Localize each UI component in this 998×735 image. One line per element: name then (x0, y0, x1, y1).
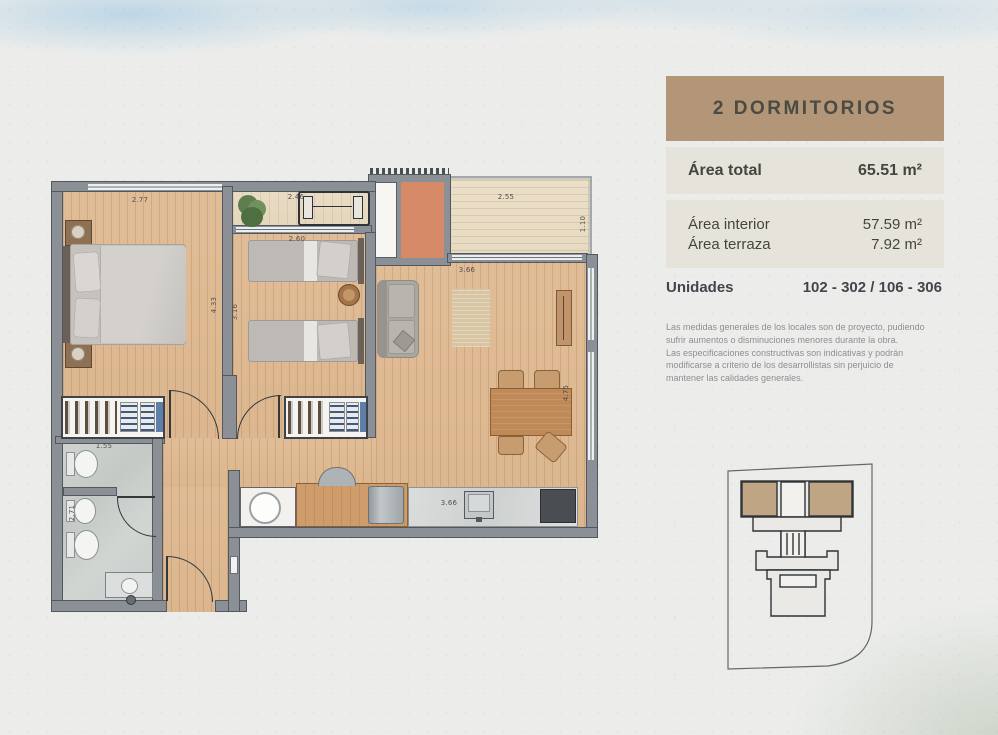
living-terrace-slider (452, 255, 582, 260)
faucet (476, 517, 482, 522)
key-plan (725, 453, 877, 673)
keyplan-unit-highlight (809, 482, 852, 516)
area-detail-box: Área interior 57.59 m² Área terraza 7.92… (666, 200, 944, 268)
dining-chair (498, 370, 524, 389)
dim-label: 1.10 (579, 216, 587, 232)
living-window-2 (588, 352, 594, 460)
plant-foliage (241, 207, 263, 227)
single-bed (248, 318, 364, 364)
folded-clothes-shelf (121, 403, 137, 431)
area-total-box: Área total 65.51 m² (666, 147, 944, 194)
pillow (316, 240, 352, 279)
bench-leg (353, 196, 363, 219)
garment-blue (156, 402, 163, 432)
pillow (316, 322, 351, 361)
terrace-boundary (451, 176, 592, 262)
area-terraza-label: Área terraza (688, 236, 771, 253)
area-interior-value: 57.59 m² (863, 216, 922, 233)
area-total-label: Área total (688, 162, 762, 180)
rug (452, 289, 490, 347)
sofa-cushion (388, 284, 415, 318)
hanging-clothes (288, 401, 326, 434)
cooktop (540, 489, 576, 523)
hanging-clothes (65, 401, 117, 434)
toilet (74, 530, 99, 560)
shaft (375, 182, 397, 258)
pillow (73, 297, 101, 338)
vanity-sink (121, 578, 138, 594)
folded-clothes-shelf (141, 403, 154, 431)
bench-leg (303, 196, 313, 219)
dim-label: 2.60 (289, 235, 305, 243)
toilet (74, 450, 98, 478)
dim-label: 2.46 (288, 193, 304, 201)
wall-bathroom-stub (63, 487, 117, 496)
washer-drum (249, 492, 281, 524)
sofa-back (377, 280, 387, 358)
kitchen-sink (464, 491, 494, 519)
headboard (358, 318, 364, 364)
wardrobe-bedroom2 (284, 396, 368, 439)
side-table-top (343, 289, 355, 301)
dim-label: 2.71 (68, 505, 76, 521)
console-decor (563, 296, 564, 340)
bidet (74, 498, 96, 524)
vanity (105, 572, 153, 598)
dim-label: 3.66 (441, 499, 457, 507)
bench-rail (313, 206, 352, 207)
wall-hall-right (228, 470, 240, 612)
sheet-fold (304, 321, 317, 361)
lamp (71, 347, 85, 361)
door-leaf-bedroom2 (278, 395, 280, 438)
dim-label: 3.16 (231, 304, 239, 320)
dim-label: 4.33 (210, 297, 218, 313)
dining-chair (534, 370, 560, 389)
door-leaf-entry (166, 556, 168, 601)
dim-label: 2.77 (132, 196, 148, 204)
dim-label: 2.55 (498, 193, 514, 201)
wall-hall-stub (222, 375, 237, 439)
shower-head-icon (126, 595, 136, 605)
console-table (556, 290, 572, 346)
nightstand (65, 342, 92, 368)
disclaimer-text: Las medidas generales de los locales son… (666, 321, 950, 385)
wall-bedroom1-bedroom2 (222, 186, 233, 383)
kitchen-cylinder (368, 486, 404, 524)
door-leaf-bathroom (117, 496, 155, 498)
unit-type-title: 2 DORMITORIOS (666, 76, 944, 141)
garment-blue (360, 402, 366, 432)
headboard (63, 246, 70, 343)
folded-clothes-shelf (347, 403, 358, 431)
wardrobe-bedroom1 (61, 396, 165, 439)
wall-kitchen-bottom (228, 527, 598, 538)
wall-bottom-bath (51, 600, 167, 612)
entry-niche (230, 556, 238, 574)
tiled-utility-floor (401, 182, 444, 258)
double-bed (63, 244, 186, 345)
area-interior-label: Área interior (688, 216, 770, 233)
sofa (377, 280, 419, 358)
unidades-value: 102 - 302 / 106 - 306 (803, 279, 942, 296)
washing-machine (240, 487, 296, 527)
unidades-label: Unidades (666, 279, 734, 296)
dim-label: 1.55 (96, 442, 112, 450)
dim-label: 4.75 (562, 385, 570, 401)
building-footprint (741, 481, 853, 616)
side-table (338, 284, 360, 306)
single-bed (248, 238, 364, 284)
keyplan-unit-highlight (742, 482, 777, 516)
dim-label: 3.66 (459, 266, 475, 274)
living-window-1 (588, 268, 594, 340)
area-total-value: 65.51 m² (858, 162, 922, 180)
lamp (71, 225, 85, 239)
dining-table (490, 388, 572, 436)
area-terraza-value: 7.92 m² (871, 236, 922, 253)
dining-chair (498, 436, 524, 455)
sheet-fold (304, 241, 317, 281)
pillow (73, 251, 102, 293)
door-leaf-bedroom1 (169, 390, 171, 438)
nightstand (65, 220, 92, 246)
bedroom1-window (88, 184, 222, 190)
unidades-row: Unidades 102 - 302 / 106 - 306 (666, 279, 942, 296)
vent-grille (370, 168, 449, 174)
watercolor-wash-top (0, 0, 998, 80)
sink-basin (468, 494, 490, 512)
plant (236, 192, 268, 230)
headboard (358, 238, 364, 284)
folded-clothes-shelf (330, 403, 344, 431)
balcony-bench (298, 191, 370, 226)
floorplan-sheet: { "panel": { "title": "2 DORMITORIOS", "… (0, 0, 998, 735)
duvet (100, 246, 186, 343)
